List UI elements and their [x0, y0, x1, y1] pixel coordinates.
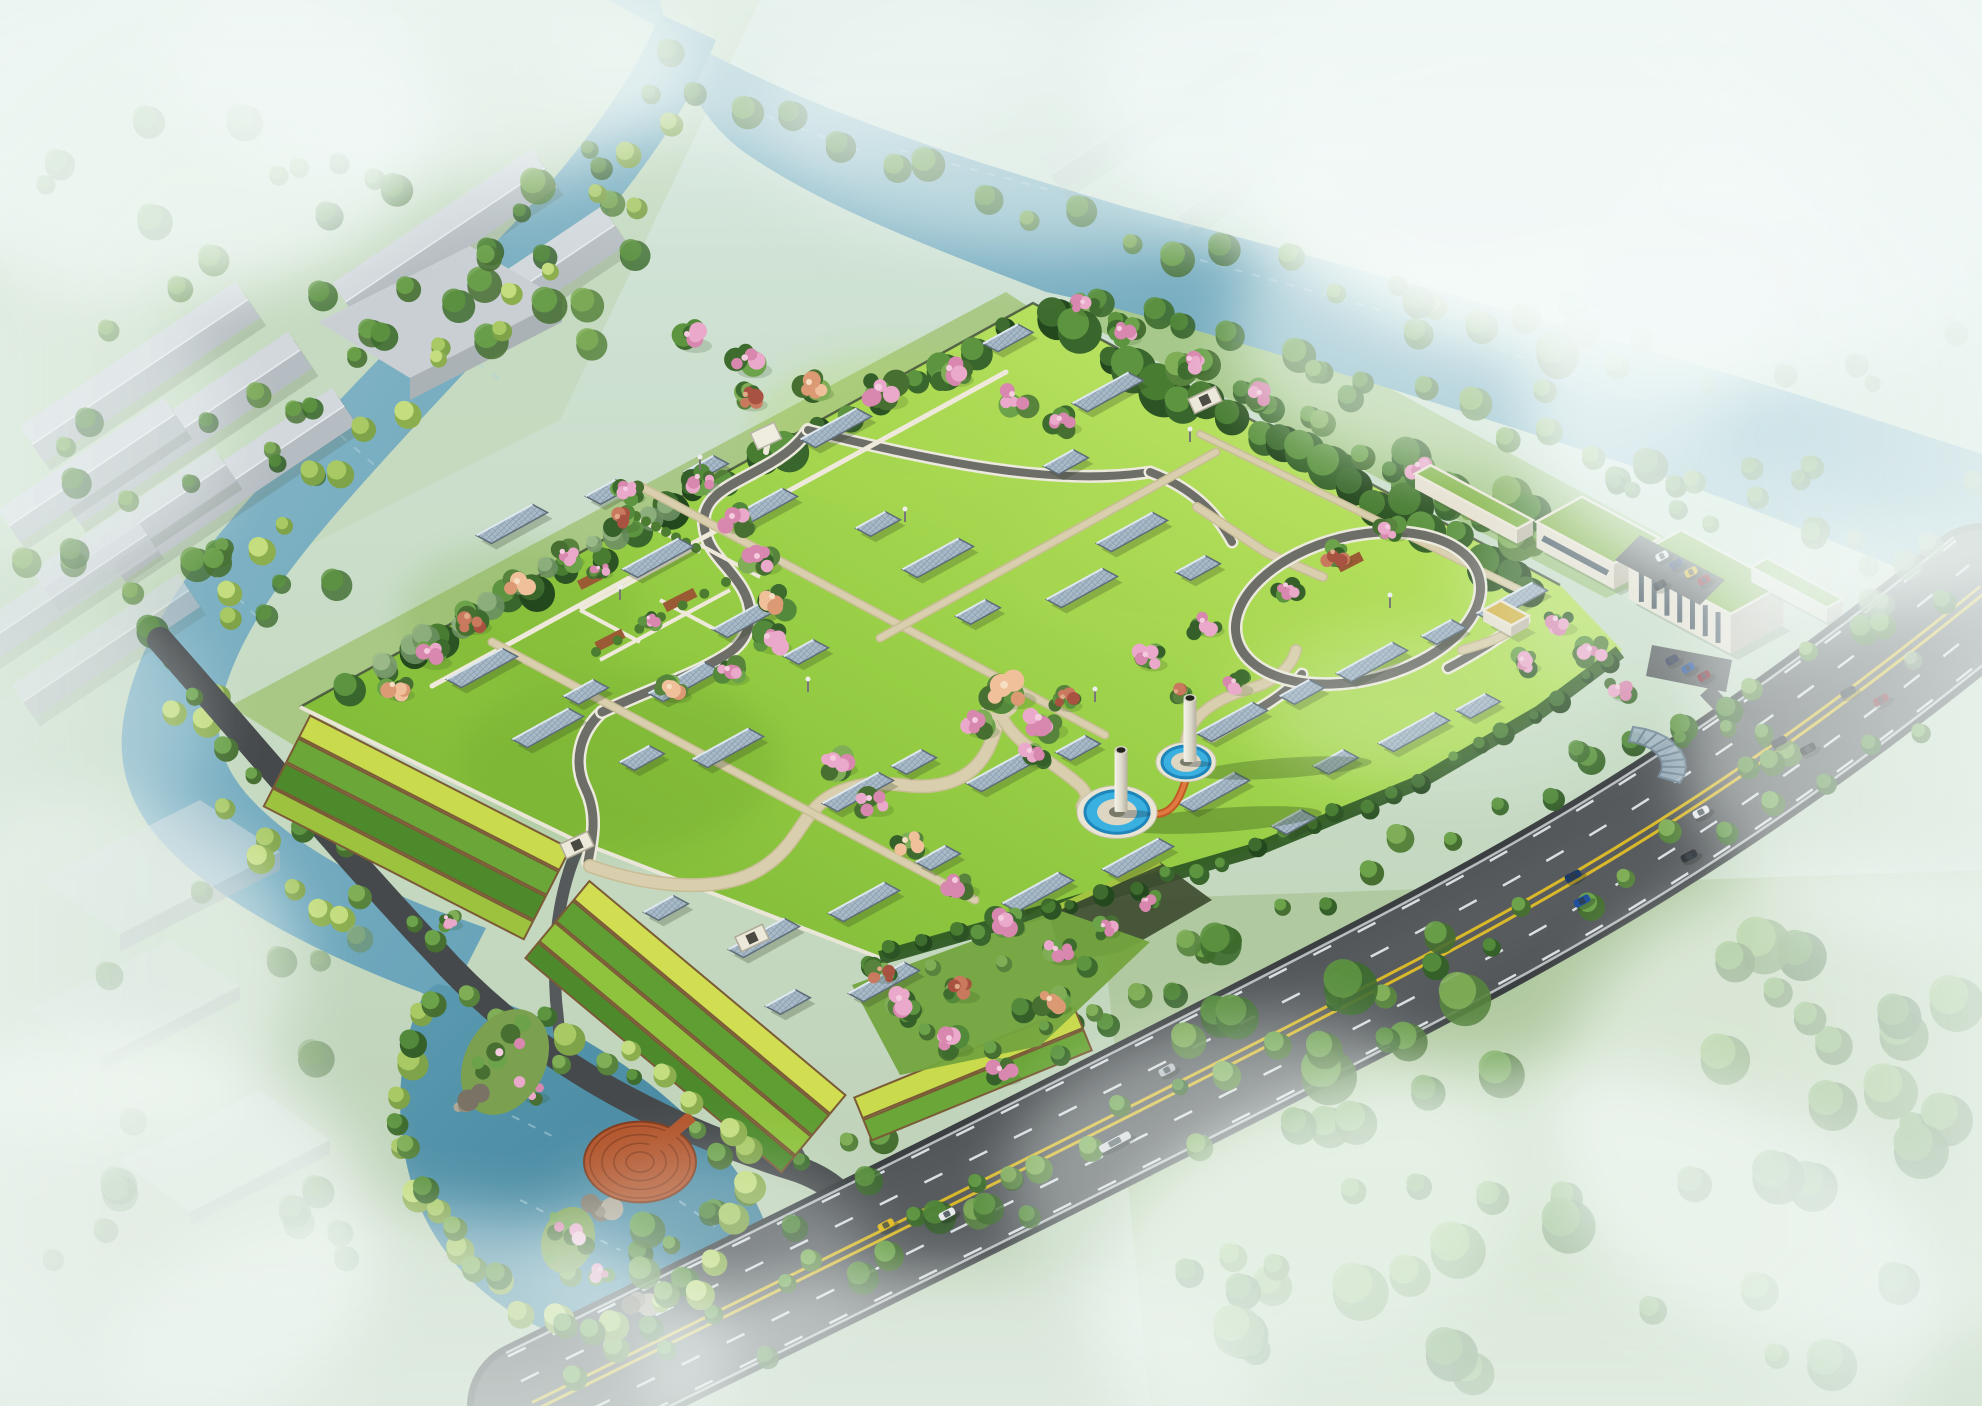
lamp-head: [1188, 427, 1193, 432]
tree-crown: [596, 1053, 612, 1069]
bloom-highlight: [1060, 694, 1065, 699]
bloom-highlight: [1080, 299, 1085, 304]
tree-crown: [1248, 838, 1262, 852]
tree-crown: [300, 460, 318, 478]
tree-crown: [285, 400, 301, 416]
bloom-highlight: [464, 613, 470, 619]
tower-mouth: [1117, 747, 1126, 753]
tree-crown: [501, 283, 516, 298]
tree-crown: [1128, 983, 1146, 1001]
rendering-canvas: [0, 0, 1982, 1406]
aerial-site-rendering: [0, 0, 1982, 1406]
tree-crown: [531, 287, 557, 313]
lawn-shading: [1000, 470, 1360, 650]
bloom-highlight: [1117, 326, 1122, 331]
bloom-highlight: [1057, 416, 1062, 421]
bloom-highlight: [806, 379, 812, 385]
tree-crown: [626, 1069, 637, 1080]
bloom-highlight: [623, 486, 628, 491]
tree-crown: [492, 321, 506, 335]
tree-crown: [855, 1166, 875, 1186]
tree-crown: [310, 950, 325, 965]
tree-crown: [308, 899, 327, 918]
tree-crown: [1424, 921, 1446, 943]
bloom-highlight: [946, 365, 952, 371]
bloom: [803, 371, 821, 389]
bloom: [1234, 686, 1242, 694]
tree-crown: [330, 906, 348, 924]
bloom: [1205, 622, 1218, 635]
tree-crown: [1189, 864, 1203, 878]
tree-crown: [720, 1118, 739, 1137]
bloom: [568, 547, 579, 558]
bloom-highlight: [743, 392, 748, 397]
tree-crown: [1163, 983, 1181, 1001]
tree-crown: [245, 767, 257, 779]
tree-crown: [1011, 998, 1028, 1015]
tree-crown: [554, 1023, 577, 1046]
tree-crown: [1511, 897, 1525, 911]
tree-crown: [203, 548, 224, 569]
tree-crown: [397, 1135, 414, 1152]
bloom: [1016, 397, 1029, 410]
tree-crown: [586, 535, 598, 547]
bloom-highlight: [741, 354, 748, 361]
bloom-highlight: [764, 633, 770, 639]
bloom-highlight: [1200, 618, 1205, 623]
island-bloom: [495, 1048, 503, 1056]
tree-crown: [970, 925, 985, 940]
tree-crown: [347, 925, 366, 944]
tree-crown: [413, 1176, 432, 1195]
tree-crown: [1176, 930, 1194, 948]
tree-crown: [431, 337, 445, 351]
maze-hedge: [721, 577, 731, 587]
tower-cylinder: [1115, 750, 1128, 812]
bloom-highlight: [1000, 681, 1008, 689]
tree-crown: [321, 569, 343, 591]
bloom: [882, 965, 895, 978]
tree-crown: [351, 416, 369, 434]
tree-crown: [576, 328, 598, 350]
island-bloom: [514, 1038, 525, 1049]
haze-right: [1742, 0, 1982, 1406]
tree-crown: [327, 460, 346, 479]
bloom: [873, 791, 885, 803]
bloom: [1000, 396, 1012, 408]
bloom-highlight: [1143, 652, 1148, 657]
bloom: [1051, 999, 1066, 1014]
tree-crown: [412, 624, 432, 644]
bloom-highlight: [1283, 582, 1288, 587]
tree-crown: [552, 1055, 565, 1068]
tree-crown: [399, 1029, 419, 1049]
tree-crown: [653, 1064, 670, 1081]
tree-crown: [1422, 953, 1441, 972]
bloom: [1139, 902, 1147, 910]
bloom-highlight: [646, 616, 650, 620]
tree-crown: [372, 652, 390, 670]
bloom: [459, 622, 469, 632]
lamp-head: [618, 585, 623, 590]
tree-crown: [215, 798, 230, 813]
tree-crown: [264, 442, 276, 454]
haze-top: [0, 0, 1982, 280]
bloom-highlight: [1047, 996, 1052, 1001]
tree-crown: [459, 985, 474, 1000]
bloom: [1149, 658, 1160, 669]
bloom-highlight: [615, 514, 620, 519]
tree-crown: [1336, 467, 1362, 493]
bloom: [748, 389, 764, 405]
bloom-highlight: [896, 995, 902, 1001]
tree-crown: [421, 991, 439, 1009]
tree-crown: [1039, 1021, 1049, 1031]
tree-crown: [1483, 938, 1496, 951]
tree-crown: [394, 401, 413, 420]
tree-crown: [1543, 788, 1559, 804]
bloom: [602, 567, 611, 576]
tree-crown: [1130, 882, 1143, 895]
bloom: [767, 599, 783, 615]
bloom-highlight: [866, 795, 872, 801]
tree-crown: [1658, 819, 1675, 836]
tree-crown: [1444, 832, 1457, 845]
bloom: [704, 480, 714, 490]
tree-crown: [272, 574, 286, 588]
bloom: [472, 617, 483, 628]
bloom: [445, 921, 453, 929]
bloom: [951, 365, 967, 381]
bloom-highlight: [390, 682, 395, 687]
tree-crown: [1307, 444, 1339, 476]
tree-crown: [348, 885, 365, 902]
tree-crown: [371, 322, 391, 342]
tree-crown: [302, 397, 317, 412]
tree-crown: [1170, 313, 1188, 331]
tree-crown: [1200, 923, 1230, 953]
bloom: [429, 650, 444, 665]
bloom-highlight: [695, 474, 700, 479]
tree-crown: [680, 1091, 696, 1107]
bloom-highlight: [725, 666, 730, 671]
bloom: [860, 803, 873, 816]
bloom-highlight: [997, 1066, 1002, 1071]
lamp-head: [1388, 593, 1393, 598]
tree-crown: [217, 581, 235, 599]
maze-hedge: [613, 635, 623, 645]
tree-crown: [406, 916, 418, 928]
bloom-highlight: [1330, 549, 1335, 554]
tree-crown: [1360, 860, 1377, 877]
tree-crown: [214, 736, 232, 754]
tree-crown: [1319, 897, 1332, 910]
bloom: [771, 638, 789, 656]
bloom: [518, 579, 534, 595]
tree-crown: [919, 1023, 931, 1035]
maze-hedge: [661, 527, 671, 537]
tree-crown: [961, 337, 984, 360]
tree-crown: [430, 350, 442, 362]
tree-crown: [915, 934, 927, 946]
tree-crown: [973, 1193, 995, 1215]
bloom-highlight: [875, 384, 882, 391]
bloom: [689, 330, 702, 343]
tree-crown: [1360, 800, 1374, 814]
bloom: [628, 482, 637, 491]
tree-crown: [996, 955, 1008, 967]
tree-crown: [906, 1207, 920, 1221]
bloom-highlight: [729, 513, 735, 519]
tower-mouth: [1186, 695, 1195, 701]
tree-crown: [1077, 956, 1092, 971]
tree-crown: [1325, 803, 1338, 816]
bloom: [1055, 698, 1064, 707]
tree-crown: [276, 517, 288, 529]
tree-crown: [840, 1132, 853, 1145]
bloom: [1104, 927, 1114, 937]
tree-crown: [246, 382, 264, 400]
bloom: [1070, 294, 1082, 306]
maze-hedge: [641, 516, 651, 526]
bloom-highlight: [769, 593, 775, 599]
bloom-highlight: [596, 566, 600, 570]
bloom-highlight: [1144, 898, 1148, 902]
lamp-head: [903, 507, 908, 512]
bloom-highlight: [1101, 923, 1105, 927]
bloom-highlight: [444, 915, 448, 919]
tree-crown: [333, 673, 356, 696]
tree-crown: [570, 288, 594, 312]
tree-crown: [1385, 786, 1398, 799]
bloom: [1033, 749, 1044, 760]
bloom-highlight: [514, 578, 520, 584]
tree-crown: [269, 454, 282, 467]
tree-crown: [298, 1039, 324, 1065]
lamp-head: [1093, 687, 1098, 692]
bloom: [1067, 692, 1080, 705]
bloom: [894, 843, 906, 855]
tree-crown: [1159, 866, 1170, 877]
bloom-highlight: [1053, 946, 1058, 951]
bloom-highlight: [952, 877, 958, 883]
tree-crown: [347, 347, 361, 361]
haze-left: [0, 0, 170, 1406]
tree-crown: [925, 959, 937, 971]
maze-hedge: [678, 600, 688, 610]
bloom: [1064, 416, 1076, 428]
bloom-highlight: [877, 966, 882, 971]
tree-crown: [1233, 380, 1249, 396]
bloom: [888, 986, 905, 1003]
tree-crown: [1064, 900, 1074, 910]
bloom: [1173, 683, 1185, 695]
bloom: [504, 582, 517, 595]
flowering-tree-cluster: [738, 545, 782, 576]
bloom: [868, 972, 879, 983]
bloom-highlight: [560, 549, 565, 554]
island-shrub: [471, 1056, 484, 1069]
maze-hedge: [651, 522, 661, 532]
bloom-highlight: [1035, 714, 1042, 721]
bloom: [1289, 587, 1299, 597]
island-bloom: [514, 1076, 526, 1088]
tree-crown: [285, 879, 300, 894]
bloom: [911, 840, 924, 853]
bloom-highlight: [972, 717, 978, 723]
tree-crown: [308, 280, 329, 301]
bloom-highlight: [424, 648, 430, 654]
lamp-head: [698, 455, 703, 460]
tree-crown: [1439, 972, 1476, 1009]
tree-crown: [950, 922, 964, 936]
bloom-highlight: [754, 553, 760, 559]
tree-crown: [387, 1113, 402, 1128]
tree-crown: [1617, 869, 1630, 882]
flowering-tree-cluster: [862, 370, 910, 411]
bloom: [1191, 356, 1200, 365]
bloom-highlight: [684, 331, 690, 337]
tower-cylinder: [1184, 698, 1197, 762]
bloom-highlight: [1009, 391, 1015, 397]
bloom: [938, 1026, 954, 1042]
tree-crown: [882, 940, 895, 953]
bloom: [1044, 940, 1054, 950]
bloom-highlight: [946, 1035, 952, 1041]
tree-crown: [425, 930, 441, 946]
bloom-highlight: [1385, 524, 1390, 529]
bloom: [1011, 691, 1025, 705]
tree-crown: [984, 1041, 997, 1054]
shrub: [637, 616, 647, 626]
tree-crown: [1050, 1045, 1064, 1059]
tree-crown: [538, 1006, 552, 1020]
bloom-highlight: [830, 755, 836, 761]
bloom-highlight: [998, 915, 1004, 921]
tree-crown: [388, 1086, 404, 1102]
tree-crown: [1323, 959, 1362, 998]
tree-crown: [968, 1174, 981, 1187]
lamp-head: [806, 677, 811, 682]
tree-crown: [1144, 297, 1166, 319]
rock: [457, 1089, 479, 1111]
maze-hedge: [699, 589, 709, 599]
bloom-highlight: [955, 984, 960, 989]
bloom: [1062, 943, 1072, 953]
maze-hedge: [591, 647, 601, 657]
bloom-highlight: [902, 837, 908, 843]
bloom: [731, 358, 742, 369]
tree-crown: [1086, 1004, 1098, 1016]
flowering-tree-cluster: [1092, 915, 1120, 940]
tree-crown: [1274, 899, 1286, 911]
bloom: [856, 793, 867, 804]
bloom: [1004, 1064, 1018, 1078]
bloom-highlight: [667, 684, 672, 689]
tree-crown: [1386, 824, 1406, 844]
tree-crown: [442, 289, 466, 313]
tree-crown: [220, 607, 236, 623]
tree-crown: [1215, 858, 1225, 868]
tree-crown: [256, 827, 274, 845]
tree-crown: [1491, 797, 1503, 809]
tree-crown: [255, 604, 271, 620]
bloom-highlight: [1027, 748, 1032, 753]
bloom: [761, 560, 774, 573]
tree-crown: [621, 1041, 635, 1055]
bloom: [1123, 325, 1136, 338]
bloom: [835, 758, 849, 772]
bloom-highlight: [1231, 678, 1236, 683]
tree-crown: [538, 557, 553, 572]
tree-crown: [248, 537, 268, 557]
tree-crown: [180, 547, 204, 571]
bloom: [731, 668, 742, 679]
bloom-highlight: [1174, 689, 1178, 693]
bloom-highlight: [1187, 356, 1192, 361]
tree-crown: [1165, 386, 1191, 412]
haze-bottom: [0, 1246, 1982, 1406]
tree-crown: [477, 592, 497, 612]
fog-patch: [1260, 630, 1640, 790]
tree-crown: [1093, 884, 1108, 899]
